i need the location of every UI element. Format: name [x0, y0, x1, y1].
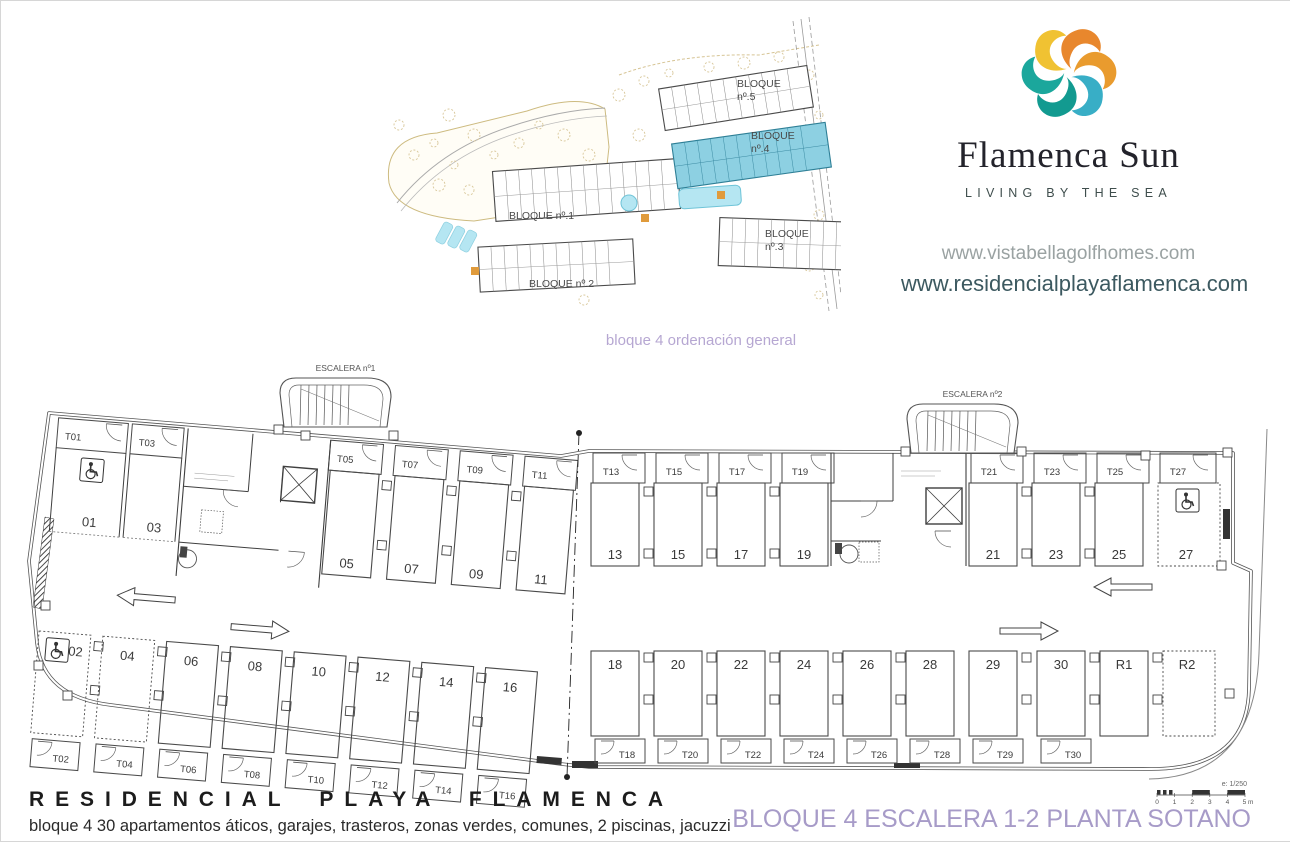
parking-spot-23: T2323 [1032, 453, 1094, 566]
column-marker [1090, 653, 1099, 662]
door-arc [491, 455, 507, 471]
column-marker [1085, 487, 1094, 496]
plan-label: T26 [871, 750, 887, 761]
column-marker [442, 546, 452, 556]
column-marker [1153, 653, 1162, 662]
wall-segment-dark [536, 756, 561, 765]
water-tank [840, 545, 858, 563]
plan-label: 12 [375, 669, 391, 685]
column-marker [1217, 561, 1226, 570]
column-marker [274, 425, 283, 434]
plan-label: T04 [116, 759, 133, 771]
plan-line [357, 767, 371, 768]
column-marker [1022, 549, 1031, 558]
plan-line [49, 531, 119, 537]
parking-spot-11: T1111 [514, 456, 578, 594]
parking-bay-03: T0303 [123, 424, 184, 542]
plan-line [229, 757, 243, 758]
column-marker [1141, 451, 1150, 460]
door-arc [861, 501, 877, 517]
column-marker [707, 549, 716, 558]
plan-label: T22 [745, 750, 761, 761]
parking-spot-27: T2727 [1158, 453, 1220, 566]
plan-label: T01 [64, 431, 81, 443]
door-arc [161, 428, 178, 445]
plan-line [166, 752, 180, 753]
parking-spot-19: T1919 [780, 453, 834, 566]
plan-label: 08 [247, 658, 263, 674]
plan-label: T30 [1065, 750, 1081, 761]
door-arc [853, 741, 866, 754]
plan-label: 19 [797, 547, 811, 562]
plan-label: T10 [307, 774, 324, 786]
door-arc [287, 551, 304, 568]
plan-label: T27 [1170, 467, 1186, 478]
plan-label: T13 [603, 467, 619, 478]
column-marker [644, 549, 653, 558]
column-marker [1022, 487, 1031, 496]
plan-label: R2 [1179, 657, 1196, 672]
parking-spot-07: T0707 [385, 446, 460, 585]
column-marker [1225, 689, 1234, 698]
door-arc [622, 455, 637, 470]
scale-major [1192, 790, 1210, 795]
plan-label: 22 [734, 657, 748, 672]
plan-line [421, 773, 435, 774]
equipment-dark [180, 546, 188, 558]
column-marker [389, 431, 398, 440]
column-marker [644, 487, 653, 496]
door-arc [356, 767, 371, 782]
column-marker [1085, 549, 1094, 558]
door-arc [1193, 455, 1208, 470]
plan-label: T28 [934, 750, 950, 761]
door-arc [426, 450, 442, 466]
plan-label: T15 [666, 467, 682, 478]
parking-spot-17: T1717 [717, 453, 779, 566]
plan-line [195, 473, 235, 476]
project-title: RESIDENCIAL PLAYA FLAMENCA [29, 788, 731, 812]
parking-spot-R1: R1 [1100, 651, 1162, 736]
plan-label: 26 [860, 657, 874, 672]
door-arc [101, 746, 116, 761]
column-marker [707, 653, 716, 662]
plan-line [123, 537, 175, 541]
utility-rooms-1 [176, 428, 331, 587]
parking-spot-22: 22T22 [717, 651, 779, 763]
right-wing: T1313T1515T1717T1919T2121T2323T2525T2727… [591, 453, 1220, 763]
column-marker [770, 487, 779, 496]
wall-segment-dark [894, 763, 920, 768]
plan-label: T20 [682, 750, 698, 761]
parking-spot-12: 12T12 [347, 657, 423, 798]
parking-spot-09: T0909 [449, 451, 524, 590]
plan-label: 25 [1112, 547, 1126, 562]
scale-minor [1169, 790, 1173, 795]
arrow-right-icon [1000, 622, 1058, 640]
column-marker [707, 487, 716, 496]
door-arc [1000, 455, 1015, 470]
plan-label: 15 [671, 547, 685, 562]
column-marker [41, 601, 50, 610]
parking-spot-16: 16T16 [474, 668, 537, 808]
plan-label: ESCALERA nº2 [943, 389, 1003, 399]
plan-line [175, 458, 182, 542]
door-arc [811, 455, 826, 470]
plan-line [179, 542, 279, 550]
plan-label: 28 [923, 657, 937, 672]
parking-spot-05: T0505 [320, 440, 395, 579]
parking-bay-01: T0101 [49, 418, 128, 537]
utility-rooms-2 [831, 453, 966, 566]
plan-label: 14 [438, 674, 454, 690]
plan-label: 30 [1054, 657, 1068, 672]
column-marker [1022, 653, 1031, 662]
door-arc [228, 757, 243, 772]
parking-spot-18: 18T18 [591, 651, 653, 763]
column-marker [511, 491, 521, 501]
plan-label: 29 [986, 657, 1000, 672]
plan-label: 17 [734, 547, 748, 562]
parking-spot-26: 26T26 [843, 651, 905, 763]
column-marker [377, 540, 387, 550]
parking-spot-21: T2121 [969, 453, 1031, 566]
plan-label: 01 [81, 514, 97, 530]
plan-label: T05 [337, 454, 354, 466]
plan-line [319, 440, 331, 588]
plan-label: R1 [1116, 657, 1133, 672]
door-arc [292, 762, 307, 777]
plan-label: T21 [981, 467, 997, 478]
column-marker [1090, 695, 1099, 704]
plan-label: T29 [997, 750, 1013, 761]
page: BLOQUE nº.1BLOQUE nº.2BLOQUEnº.3BLOQUEnº… [0, 0, 1290, 842]
scale-minor [1163, 790, 1167, 795]
parking-spot-29: 29T29 [969, 651, 1031, 763]
door-arc [935, 531, 951, 547]
plan-label: T19 [792, 467, 808, 478]
plan-label: T11 [531, 470, 548, 482]
plan-label: 20 [671, 657, 685, 672]
column-marker [447, 486, 457, 496]
column-marker [770, 549, 779, 558]
door-arc [685, 455, 700, 470]
scale-major [1227, 790, 1245, 795]
door-arc [664, 741, 677, 754]
column-marker [382, 481, 392, 491]
door-arc [979, 741, 992, 754]
arrow-left-icon [1094, 578, 1152, 596]
plan-line [362, 445, 377, 446]
door-arc [420, 773, 435, 788]
plan-label: T17 [729, 467, 745, 478]
plan-label: 21 [986, 547, 1000, 562]
door-arc [1126, 455, 1141, 470]
plan-label: 07 [404, 561, 420, 577]
plan-label: T09 [466, 464, 483, 476]
plan-line [492, 455, 507, 456]
equipment-box [200, 510, 224, 534]
retaining-wall-hatch [33, 517, 54, 609]
door-arc [601, 741, 614, 754]
plan-line [119, 453, 126, 537]
plan-label: 23 [1049, 547, 1063, 562]
plan-label: 24 [797, 657, 811, 672]
scale-bar-group: e: 1/250012345 m [1155, 781, 1253, 806]
wall-segment-dark [572, 761, 598, 768]
footer-block: RESIDENCIAL PLAYA FLAMENCA bloque 4 30 a… [29, 788, 731, 836]
parking-spot-14: 14T14 [411, 662, 487, 803]
door-arc [1063, 455, 1078, 470]
column-marker [896, 695, 905, 704]
plan-label: T25 [1107, 467, 1123, 478]
column-marker [34, 661, 43, 670]
column-marker [644, 695, 653, 704]
column-marker [1153, 695, 1162, 704]
basement-floor-plan: T0101T0303T0505T0707T0909T111102T0204T04… [1, 1, 1290, 841]
wheelchair-icon [80, 458, 105, 483]
plan-label: 02 [68, 643, 84, 659]
plan-label: 11 [534, 571, 549, 587]
door-arc [748, 455, 763, 470]
equipment-box [859, 542, 879, 562]
parking-spot-30: 30T30 [1037, 651, 1099, 763]
door-arc [222, 490, 239, 507]
plan-label: ESCALERA nº1 [316, 363, 376, 373]
plan-label: 13 [608, 547, 622, 562]
left-wing: T0101T0303T0505T0707T0909T111102T0204T04… [28, 418, 578, 810]
parking-spot-13: T1313 [591, 453, 653, 566]
stair-core: ESCALERA nº2 [907, 389, 1018, 453]
plan-label: 27 [1179, 547, 1193, 562]
plan-label: 10 [311, 663, 327, 679]
plan-label: 18 [608, 657, 622, 672]
plan-label: 06 [183, 653, 199, 669]
scale-minor [1157, 790, 1161, 795]
arrow-right-icon [230, 618, 289, 641]
wheelchair-icon [1176, 489, 1199, 512]
plan-label: T18 [619, 750, 635, 761]
column-marker [63, 691, 72, 700]
plan-label: T07 [401, 459, 418, 471]
scale-bar: e: 1/250012345 m [1149, 779, 1253, 807]
plan-line [123, 454, 130, 538]
parking-spot-R2: R2 [1163, 651, 1215, 736]
wheelchair-icon [45, 638, 70, 663]
plan-line [194, 478, 228, 481]
column-marker [301, 431, 310, 440]
column-marker [833, 653, 842, 662]
column-marker [506, 551, 516, 561]
plan-line [248, 434, 253, 492]
parking-spot-20: 20T20 [654, 651, 716, 763]
plan-label: T23 [1044, 467, 1060, 478]
door-arc [727, 741, 740, 754]
door-arc [916, 741, 929, 754]
project-subtitle: bloque 4 30 apartamentos áticos, garajes… [29, 817, 731, 836]
door-arc [790, 741, 803, 754]
column-marker [707, 695, 716, 704]
door-arc [37, 741, 52, 756]
plan-line [106, 424, 122, 425]
plan-label: T06 [180, 764, 197, 776]
column-marker [644, 653, 653, 662]
drawing-title: BLOQUE 4 ESCALERA 1-2 PLANTA SOTANO [732, 805, 1251, 834]
parking-spot-24: 24T24 [780, 651, 842, 763]
column-marker [1223, 448, 1232, 457]
plan-line [557, 461, 572, 462]
arrow-left-icon [117, 586, 176, 609]
column-marker [896, 653, 905, 662]
column-marker [901, 447, 910, 456]
parking-spot-28: 28T28 [906, 651, 960, 763]
column-marker [770, 653, 779, 662]
column-marker [833, 695, 842, 704]
trastero-T27 [1160, 453, 1216, 483]
parking-spot-10: 10T10 [283, 652, 359, 793]
column-marker [1017, 447, 1026, 456]
plan-label: e: 1/250 [1222, 781, 1247, 788]
parking-spot-25: T2525 [1095, 453, 1149, 566]
wall-segment-dark [1223, 509, 1230, 539]
elevator-shaft [926, 488, 962, 524]
plan-label: 16 [502, 679, 518, 695]
plan-line [288, 551, 304, 552]
plan-label: T03 [138, 437, 155, 449]
plan-line [293, 762, 307, 763]
door-arc [164, 752, 179, 767]
plan-label: 04 [120, 648, 136, 664]
parking-spot-15: T1515 [654, 453, 716, 566]
parking-spot-08: 08T08 [219, 647, 295, 788]
elevator-shaft [281, 466, 318, 503]
door-arc [105, 424, 122, 441]
plan-line [427, 450, 442, 451]
plan-line [38, 741, 52, 742]
plan-label: 09 [468, 566, 484, 582]
column-marker [770, 695, 779, 704]
door-arc [361, 445, 377, 461]
plan-label: 05 [339, 555, 355, 571]
door-arc [1047, 741, 1060, 754]
door-arc [556, 461, 572, 477]
plan-line [485, 778, 499, 779]
stair-core: ESCALERA nº1 [280, 363, 391, 427]
plan-label: 03 [146, 519, 162, 535]
plan-label: T24 [808, 750, 824, 761]
plan-line [102, 746, 116, 747]
plan-label: T08 [243, 769, 260, 781]
column-marker [1022, 695, 1031, 704]
plan-line [567, 433, 579, 777]
section-line [564, 430, 582, 780]
plan-label: T02 [52, 753, 69, 765]
plan-line [162, 428, 178, 429]
equipment-dark [835, 543, 842, 554]
